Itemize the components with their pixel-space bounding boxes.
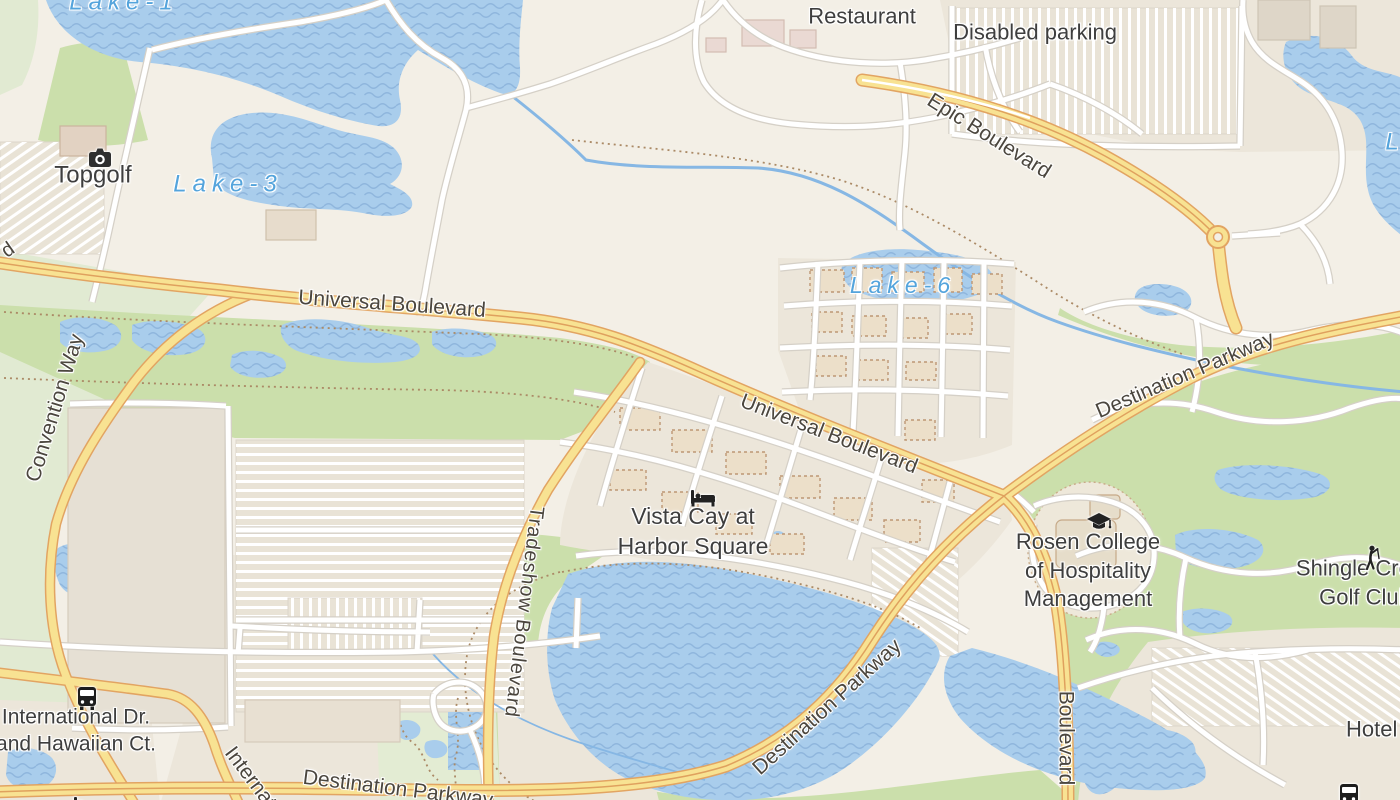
label-intl-line2: and Hawaiian Ct.: [0, 731, 156, 758]
label-road-convention-way: Convention Way: [20, 331, 91, 486]
label-lake-edge-fragment: L: [1385, 126, 1400, 157]
label-lake-3: Lake-3: [173, 168, 282, 199]
label-rosen-line3: Management: [1016, 585, 1160, 614]
label-lake-6: Lake-6: [850, 271, 956, 301]
label-vista-cay: Vista Cay at Harbor Square: [618, 502, 769, 562]
map-canvas[interactable]: Lake-1 Lake-3 Lake-6 L Epic Boulevard Un…: [0, 0, 1400, 800]
label-vista-cay-line2: Harbor Square: [618, 532, 769, 562]
label-road-epic-blvd: Epic Boulevard: [922, 87, 1056, 185]
label-shingle-line2: Golf Club: [1296, 583, 1400, 612]
label-road-tradeshow-blvd: Tradeshow Boulevard: [498, 505, 550, 719]
label-disabled-parking: Disabled parking: [953, 19, 1117, 48]
label-hotel: Hotel: [1346, 716, 1397, 745]
label-road-edge-fragment: d: [0, 236, 20, 264]
label-lake-1: Lake-1: [69, 0, 178, 18]
map-labels: Lake-1 Lake-3 Lake-6 L Epic Boulevard Un…: [0, 0, 1400, 800]
label-road-universal-blvd-w: Universal Boulevard: [297, 284, 486, 324]
label-road-destination-pkwy-ne: Destination Parkway: [1092, 325, 1279, 425]
label-road-destination-pkwy-s: Destination Parkway: [747, 633, 908, 781]
label-road-boulevard-south: Boulevard: [1052, 691, 1079, 786]
label-shingle-line1: Shingle Creek: [1296, 554, 1400, 583]
label-road-universal-blvd-e: Universal Boulevard: [736, 388, 921, 481]
label-shingle-creek: Shingle Creek Golf Club: [1296, 554, 1400, 611]
label-restaurant: Restaurant: [808, 3, 916, 32]
label-rosen-college: Rosen College of Hospitality Management: [1016, 528, 1160, 614]
label-rosen-line2: of Hospitality: [1016, 557, 1160, 586]
label-road-destination-pkwy-sw: Destination Parkway: [301, 764, 494, 800]
